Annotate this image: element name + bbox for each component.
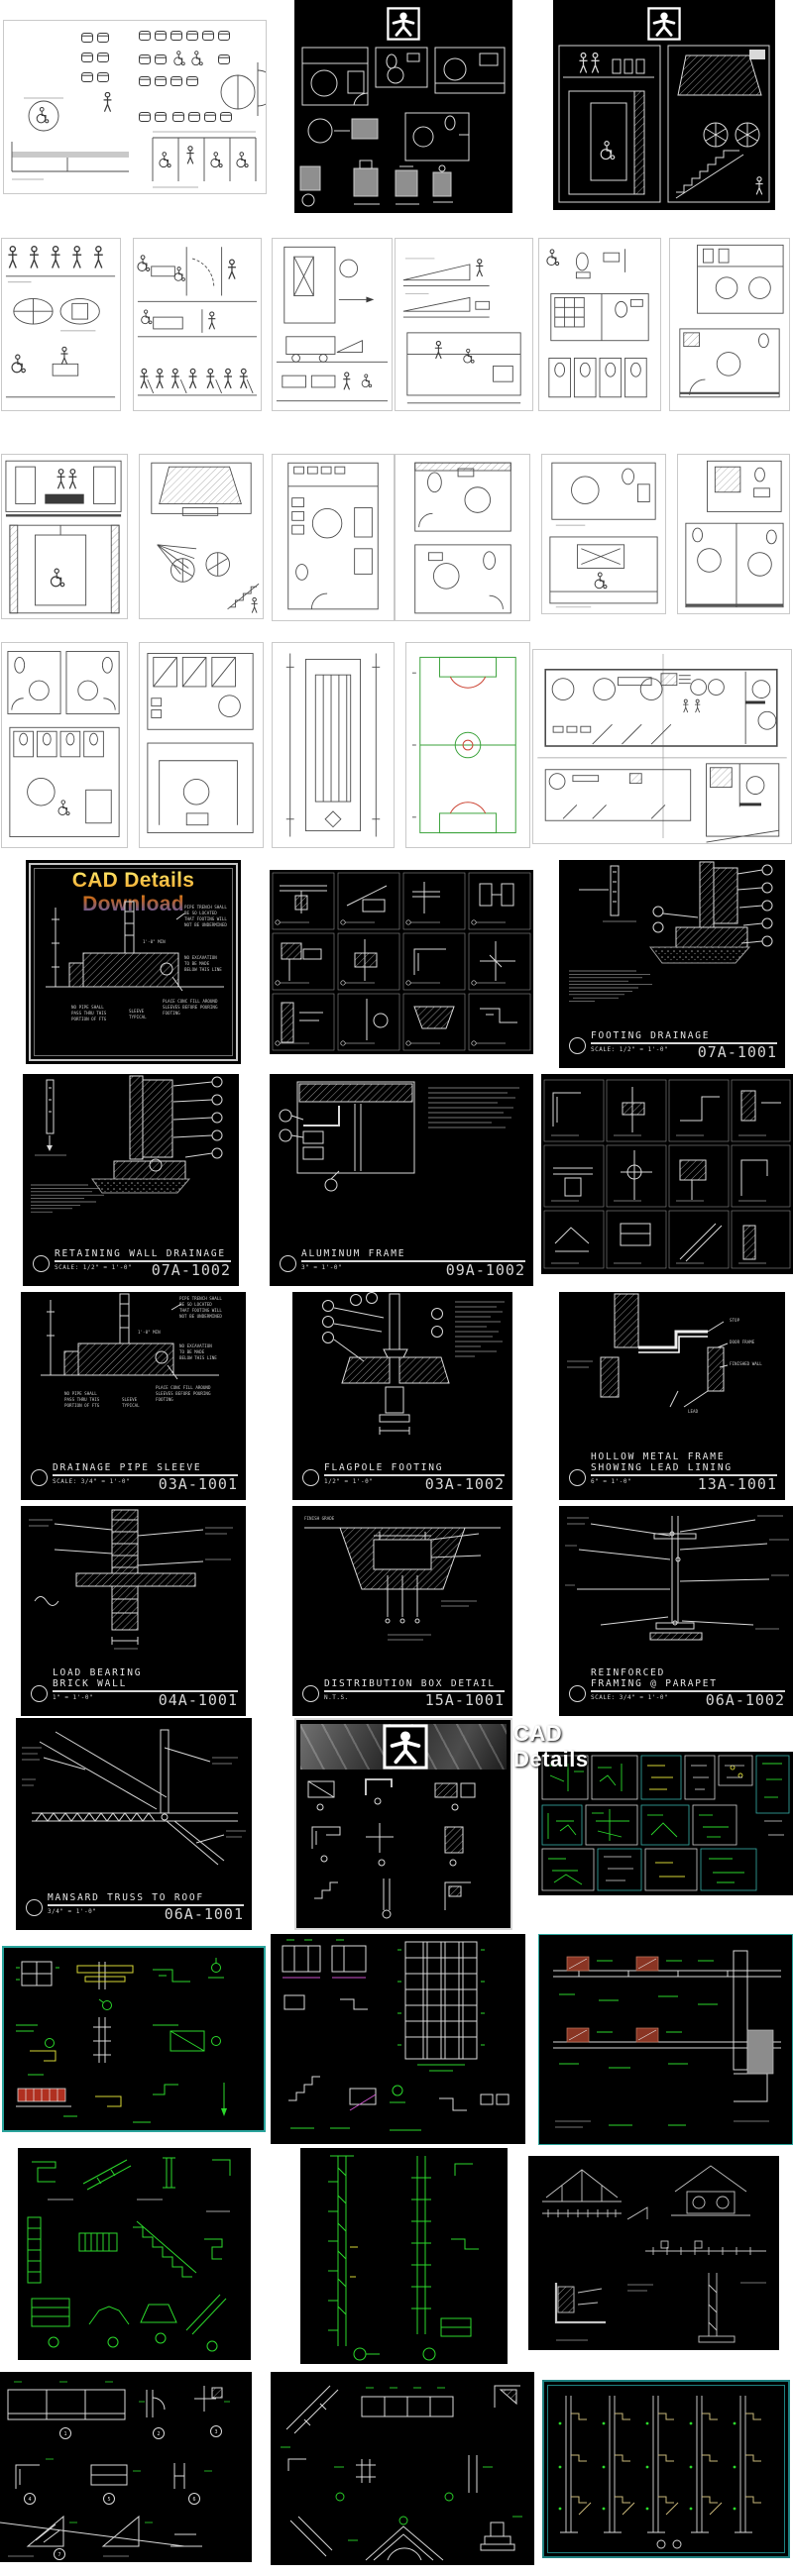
- title-block: MANSARD TRUSS TO ROOF 3/4" = 1'-0" 06A-1…: [26, 1893, 244, 1923]
- sheet-scale: 1" = 1'-0": [53, 1693, 93, 1701]
- sheet-number: 03A-1001: [159, 1475, 238, 1493]
- cad-drawing: [670, 239, 789, 410]
- cad-drawing: [2, 643, 127, 847]
- sheet-number: 06A-1002: [706, 1691, 785, 1709]
- svg-text:TO BE MADE: TO BE MADE: [184, 961, 210, 966]
- cad-drawing: [541, 1074, 793, 1274]
- thumbnail-aluminum-frame-sheet[interactable]: ALUMINUM FRAME 3" = 1'-0" 09A-1002: [270, 1074, 533, 1286]
- svg-text:FINISH GRADE: FINISH GRADE: [304, 1516, 335, 1521]
- cad-drawing: [134, 239, 261, 410]
- cad-drawing: [559, 1506, 793, 1655]
- detail-bubble-icon: [31, 1685, 48, 1702]
- svg-text:NOT BE UNDERMINED: NOT BE UNDERMINED: [179, 1314, 222, 1319]
- svg-text:SLEEVE: SLEEVE: [122, 1397, 138, 1402]
- sheet-scale: SCALE: 1/2" = 1'-0": [591, 1045, 668, 1053]
- svg-text:5: 5: [107, 2497, 110, 2503]
- title-block: DISTRIBUTION BOX DETAIL N.T.S. 15A-1001: [302, 1679, 505, 1709]
- svg-text:4: 4: [28, 2497, 31, 2503]
- svg-text:NO EXCAVATION: NO EXCAVATION: [179, 1343, 212, 1348]
- poster-header: Accessibility Facilities: [560, 7, 768, 41]
- svg-text:PORTION OF FTG: PORTION OF FTG: [71, 1017, 107, 1021]
- cad-drawing: [271, 2372, 534, 2565]
- cad-drawing: [406, 643, 529, 847]
- thumbnail-mansard-truss-roof-sheet[interactable]: MANSARD TRUSS TO ROOF 3/4" = 1'-0" 06A-1…: [16, 1718, 252, 1930]
- thumbnail-accessibility-facilities-poster-2[interactable]: Accessibility Facilities: [553, 0, 775, 210]
- svg-text:NO EXCAVATION: NO EXCAVATION: [184, 955, 217, 960]
- cad-drawing: [539, 1935, 792, 2144]
- detail-bubble-icon: [302, 1685, 319, 1702]
- detail-bubble-icon: [280, 1255, 296, 1272]
- sheet-number: 07A-1002: [152, 1261, 231, 1279]
- cad-drawing: [4, 21, 266, 193]
- sheet-scale: 3/4" = 1'-0": [48, 1907, 96, 1915]
- svg-text:6: 6: [192, 2497, 195, 2503]
- cad-drawing: [270, 1074, 533, 1229]
- thumbnail-construction-details-sheet-5[interactable]: [300, 2148, 508, 2364]
- thumbnail-wheelchair-reach-diagrams[interactable]: [133, 238, 262, 411]
- thumbnail-elevator-lobby[interactable]: [1, 454, 128, 619]
- thumbnail-drainage-pipe-sleeve-sheet[interactable]: PIPE TRENCH SHALL BE SO LOCATED THAT FOO…: [21, 1292, 246, 1500]
- thumbnail-shower-room-plans[interactable]: [677, 454, 790, 614]
- svg-text:STOP: STOP: [730, 1318, 740, 1323]
- svg-text:PORTION OF FTG: PORTION OF FTG: [64, 1403, 100, 1408]
- thumbnail-restroom-plans-b[interactable]: [139, 642, 264, 848]
- cad-drawing: [296, 1775, 510, 1924]
- svg-text:3: 3: [214, 2429, 217, 2435]
- sheet-scale: N.T.S.: [324, 1693, 349, 1701]
- accessibility-logo-icon: [304, 1724, 507, 1770]
- svg-text:PLACE CONC FILL AROUND: PLACE CONC FILL AROUND: [156, 1385, 211, 1390]
- title-block: LOAD BEARING BRICK WALL 1" = 1'-0" 04A-1…: [31, 1668, 238, 1709]
- thumbnail-corridor-plan[interactable]: [272, 642, 395, 848]
- thumbnail-construction-details-sheet-9[interactable]: [542, 2380, 790, 2558]
- svg-text:1'-0" MIN: 1'-0" MIN: [143, 939, 166, 944]
- svg-text:LEAD: LEAD: [688, 1409, 699, 1414]
- poster-title: Accessibility Facilities: [775, 16, 793, 33]
- svg-text:1'-0" MIN: 1'-0" MIN: [138, 1330, 161, 1335]
- svg-text:FINISHED WALL: FINISHED WALL: [730, 1361, 762, 1366]
- sheet-scale: 1/2" = 1'-0": [324, 1477, 373, 1485]
- svg-text:TO BE MADE: TO BE MADE: [179, 1349, 205, 1354]
- svg-text:DOOR FRAME: DOOR FRAME: [730, 1340, 755, 1344]
- thumbnail-construction-details-sheet-7[interactable]: 1 2 3 4 5 6 7: [0, 2372, 252, 2562]
- cad-drawing: [273, 239, 392, 410]
- cad-drawing: [539, 239, 660, 410]
- thumbnail-details-grid-sheet-2[interactable]: [541, 1074, 793, 1274]
- svg-text:SLEEVE: SLEEVE: [129, 1009, 145, 1014]
- cad-drawing: [21, 1506, 246, 1655]
- cad-drawing: [559, 860, 785, 1005]
- thumbnail-distribution-box-detail-sheet[interactable]: FINISH GRADE DISTRIBUTION BOX DETAIL N.T…: [292, 1506, 512, 1716]
- svg-text:NO PIPE SHALL: NO PIPE SHALL: [71, 1005, 104, 1010]
- cad-drawing: [396, 455, 529, 620]
- thumbnail-accessibility-facilities-poster-1[interactable]: Accessibility Facilities: [294, 0, 512, 213]
- svg-text:TYPICAL: TYPICAL: [122, 1403, 140, 1408]
- thumbnail-reinforced-framing-parapet-sheet[interactable]: REINFORCED FRAMING @ PARAPET SCALE: 3/4"…: [559, 1506, 793, 1716]
- svg-text:TYPICAL: TYPICAL: [129, 1015, 147, 1020]
- cad-drawing: [300, 2148, 508, 2364]
- cad-drawing: [18, 2148, 251, 2360]
- sheet-title-line2: SHOWING LEAD LINING: [591, 1463, 777, 1474]
- cad-drawing: [2, 455, 127, 618]
- cad-drawing: [273, 455, 394, 620]
- sheet-scale: SCALE: 3/4" = 1'-0": [591, 1693, 668, 1701]
- cad-drawing: [542, 455, 665, 613]
- thumbnail-load-bearing-brick-wall-sheet[interactable]: LOAD BEARING BRICK WALL 1" = 1'-0" 04A-1…: [21, 1506, 246, 1716]
- sheet-title: MANSARD TRUSS TO ROOF: [48, 1893, 244, 1904]
- cad-drawing: [270, 870, 533, 1054]
- thumbnail-restroom-plans-a[interactable]: [1, 642, 128, 848]
- cad-drawing: [2, 239, 120, 410]
- svg-text:FOOTING: FOOTING: [156, 1397, 173, 1402]
- thumbnail-construction-details-sheet-8[interactable]: [271, 2372, 534, 2565]
- cad-drawing: [533, 650, 791, 843]
- svg-text:BELOW THIS LINE: BELOW THIS LINE: [179, 1355, 217, 1360]
- detail-bubble-icon: [569, 1037, 586, 1054]
- detail-bubble-icon: [569, 1469, 586, 1486]
- sheet-number: 09A-1002: [446, 1261, 525, 1279]
- cad-drawing: [16, 1718, 252, 1873]
- detail-bubble-icon: [26, 1899, 43, 1916]
- sheet-title: FLAGPOLE FOOTING: [324, 1463, 505, 1474]
- sheet-number: 03A-1002: [425, 1475, 505, 1493]
- detail-bubble-icon: [33, 1255, 50, 1272]
- cad-drawing: [538, 1752, 793, 1895]
- cad-drawing: [273, 643, 394, 847]
- thumbnail-hollow-metal-frame-sheet[interactable]: STOP DOOR FRAME FINISHED WALL LEAD HOLLO…: [559, 1292, 785, 1500]
- accessibility-logo-icon: [560, 7, 768, 41]
- thumbnail-cad-blocks-library-sheet[interactable]: [538, 1752, 793, 1895]
- svg-text:PASS THRU THIS: PASS THRU THIS: [71, 1011, 107, 1016]
- svg-text:PASS THRU THIS: PASS THRU THIS: [64, 1397, 100, 1402]
- svg-text:THAT FOOTING WILL: THAT FOOTING WILL: [184, 916, 227, 921]
- svg-text:NO PIPE SHALL: NO PIPE SHALL: [64, 1391, 97, 1396]
- title-block: RETAINING WALL DRAINAGE SCALE: 1/2" = 1'…: [33, 1249, 231, 1279]
- thumbnail-ramp-slope-diagrams[interactable]: [395, 238, 533, 411]
- cover-header: CAD Details: [300, 1724, 507, 1770]
- sheet-number: 04A-1001: [159, 1691, 238, 1709]
- svg-text:SLEEVES BEFORE POURING: SLEEVES BEFORE POURING: [163, 1005, 218, 1010]
- svg-text:FOOTING: FOOTING: [163, 1011, 180, 1016]
- thumbnail-construction-details-sheet-4[interactable]: [18, 2148, 251, 2360]
- svg-text:PIPE TRENCH SHALL: PIPE TRENCH SHALL: [179, 1296, 222, 1301]
- sheet-title-line2: FRAMING @ PARAPET: [591, 1679, 785, 1690]
- cad-drawing: PIPE TRENCH SHALL BE SO LOCATED THAT FOO…: [26, 900, 241, 1058]
- cad-drawing: [292, 1292, 512, 1441]
- svg-text:THAT FOOTING WILL: THAT FOOTING WILL: [179, 1308, 222, 1313]
- detail-bubble-icon: [31, 1469, 48, 1486]
- thumbnail-construction-details-sheet-2[interactable]: [271, 1934, 525, 2144]
- thumbnail-retaining-wall-drainage-sheet[interactable]: RETAINING WALL DRAINAGE SCALE: 1/2" = 1'…: [23, 1074, 239, 1286]
- cad-drawing: 1 2 3 4 5 6 7: [0, 2372, 252, 2562]
- thumbnail-cad-details-cover[interactable]: CAD Details: [294, 1718, 512, 1930]
- sheet-title: RETAINING WALL DRAINAGE: [55, 1249, 231, 1260]
- cad-drawing: [296, 44, 510, 210]
- thumbnail-office-room-plan[interactable]: [272, 454, 395, 621]
- sheet-scale: SCALE: 3/4" = 1'-0": [53, 1477, 130, 1485]
- svg-text:2: 2: [157, 2431, 160, 2437]
- svg-text:BE SO LOCATED: BE SO LOCATED: [179, 1302, 212, 1307]
- cad-drawing: FINISH GRADE: [292, 1506, 512, 1655]
- cad-drawing: [544, 2382, 788, 2556]
- thumbnail-construction-details-sheet-6[interactable]: [528, 2156, 779, 2350]
- cad-drawing: STOP DOOR FRAME FINISHED WALL LEAD: [559, 1292, 785, 1437]
- sheet-number: 06A-1001: [165, 1905, 244, 1923]
- thumbnail-cad-details-download-cover[interactable]: CAD Details Download PIPE TRENCH SHALL B…: [26, 860, 241, 1064]
- svg-text:BELOW THIS LINE: BELOW THIS LINE: [184, 967, 222, 972]
- thumbnail-details-grid-sheet-1[interactable]: [270, 870, 533, 1054]
- cad-drawing: [140, 643, 263, 847]
- thumbnail-vanity-elevation[interactable]: [541, 454, 666, 614]
- cad-drawing: [271, 1934, 525, 2144]
- thumbnail-accessibility-seating-layout[interactable]: [3, 20, 267, 194]
- cad-gallery-page: Accessibility Facilities: [0, 0, 793, 2576]
- thumbnail-toilet-fixture-layouts[interactable]: [538, 238, 661, 411]
- thumbnail-construction-details-sheet-3[interactable]: [538, 1934, 793, 2145]
- svg-text:PLACE CONC FILL AROUND: PLACE CONC FILL AROUND: [163, 999, 218, 1004]
- sheet-title: DRAINAGE PIPE SLEEVE: [53, 1463, 238, 1474]
- thumbnail-platform-lift-stair[interactable]: [139, 454, 264, 619]
- accessibility-logo-icon: [301, 7, 506, 41]
- thumbnail-flagpole-footing-sheet[interactable]: FLAGPOLE FOOTING 1/2" = 1'-0" 03A-1002: [292, 1292, 512, 1500]
- title-block: HOLLOW METAL FRAME SHOWING LEAD LINING 6…: [569, 1452, 777, 1493]
- title-block: DRAINAGE PIPE SLEEVE SCALE: 3/4" = 1'-0"…: [31, 1463, 238, 1493]
- thumbnail-footing-drainage-sheet[interactable]: FOOTING DRAINAGE SCALE: 1/2" = 1'-0" 07A…: [559, 860, 785, 1068]
- cad-drawing: [23, 1074, 239, 1223]
- sheet-scale: 3" = 1'-0": [301, 1263, 342, 1271]
- thumbnail-toilet-room-plans[interactable]: [395, 454, 530, 621]
- svg-text:NOT BE UNDERMINED: NOT BE UNDERMINED: [184, 922, 227, 927]
- detail-bubble-icon: [569, 1685, 586, 1702]
- thumbnail-accessible-parking[interactable]: [272, 238, 393, 411]
- thumbnail-kitchen-room-plans[interactable]: [669, 238, 790, 411]
- sheet-number: 07A-1001: [698, 1043, 777, 1061]
- cad-drawing: [528, 2156, 779, 2350]
- cad-drawing: [555, 44, 773, 208]
- sheet-title-line2: BRICK WALL: [53, 1679, 238, 1690]
- cad-drawing: [140, 455, 263, 618]
- cad-drawing: [678, 455, 789, 613]
- poster-header: Accessibility Facilities: [301, 7, 506, 41]
- cad-drawing: [396, 239, 532, 410]
- sheet-title: ALUMINUM FRAME: [301, 1249, 525, 1260]
- cad-drawing: [4, 1948, 264, 2130]
- thumbnail-construction-details-sheet-1[interactable]: [2, 1946, 266, 2132]
- svg-text:SLEEVES BEFORE POURING: SLEEVES BEFORE POURING: [156, 1391, 211, 1396]
- title-block: FLAGPOLE FOOTING 1/2" = 1'-0" 03A-1002: [302, 1463, 505, 1493]
- cover-title: CAD Details: [513, 1721, 589, 1772]
- svg-text:BE SO LOCATED: BE SO LOCATED: [184, 911, 217, 915]
- sheet-scale: 6" = 1'-0": [591, 1477, 631, 1485]
- title-block: FOOTING DRAINAGE SCALE: 1/2" = 1'-0" 07A…: [569, 1031, 777, 1061]
- sheet-number: 13A-1001: [698, 1475, 777, 1493]
- sheet-number: 15A-1001: [425, 1691, 505, 1709]
- svg-text:1: 1: [63, 2431, 66, 2437]
- thumbnail-anthropometric-figures[interactable]: [1, 238, 121, 411]
- sheet-scale: SCALE: 1/2" = 1'-0": [55, 1263, 132, 1271]
- title-block: ALUMINUM FRAME 3" = 1'-0" 09A-1002: [280, 1249, 525, 1279]
- svg-text:7: 7: [57, 2552, 60, 2558]
- title-block: REINFORCED FRAMING @ PARAPET SCALE: 3/4"…: [569, 1668, 785, 1709]
- sheet-title: DISTRIBUTION BOX DETAIL: [324, 1679, 505, 1690]
- thumbnail-locker-room-plans[interactable]: [532, 649, 792, 844]
- svg-text:PIPE TRENCH SHALL: PIPE TRENCH SHALL: [184, 905, 227, 910]
- cad-drawing: PIPE TRENCH SHALL BE SO LOCATED THAT FOO…: [21, 1292, 246, 1441]
- thumbnail-sports-court-plan[interactable]: [405, 642, 530, 848]
- detail-bubble-icon: [302, 1469, 319, 1486]
- sheet-title: FOOTING DRAINAGE: [591, 1031, 777, 1042]
